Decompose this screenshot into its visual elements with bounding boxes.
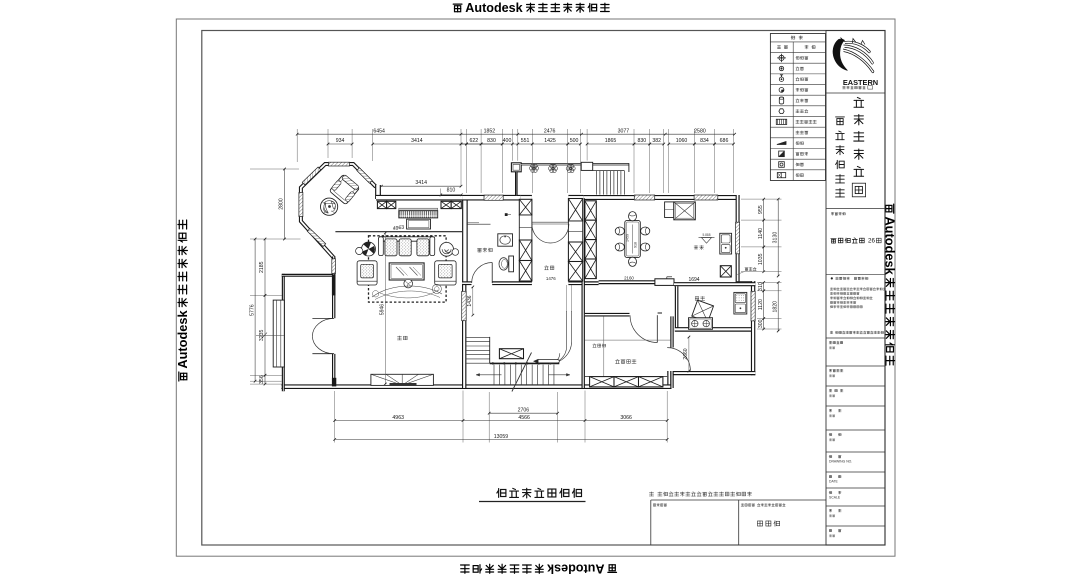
svg-text:SCALE: SCALE (829, 496, 841, 500)
svg-text:310: 310 (758, 282, 764, 291)
svg-text:3414: 3414 (415, 180, 427, 186)
svg-text:3235: 3235 (259, 329, 265, 341)
svg-text:1425: 1425 (544, 138, 556, 144)
svg-text:1852: 1852 (484, 128, 496, 134)
svg-text:1120: 1120 (758, 299, 764, 310)
svg-text:2800: 2800 (279, 198, 285, 210)
svg-text:934: 934 (336, 138, 345, 144)
svg-text:3414: 3414 (411, 138, 423, 144)
svg-text:1694: 1694 (688, 277, 699, 283)
svg-text:1060: 1060 (676, 138, 688, 144)
svg-text:5776: 5776 (249, 304, 255, 316)
svg-text:1820: 1820 (772, 301, 778, 313)
svg-text:DRAWING NO.: DRAWING NO. (829, 460, 852, 464)
svg-text:686: 686 (720, 138, 729, 144)
svg-text:4566: 4566 (518, 415, 530, 421)
svg-text:5.888: 5.888 (703, 233, 711, 237)
svg-text:3066: 3066 (620, 415, 632, 421)
svg-text:1459: 1459 (625, 234, 629, 242)
svg-text:810: 810 (447, 188, 456, 194)
svg-text:5946: 5946 (379, 304, 385, 315)
svg-text:6454: 6454 (373, 128, 385, 134)
svg-text:2580: 2580 (694, 128, 706, 134)
svg-text:EASTERN: EASTERN (843, 78, 878, 87)
svg-text:1476: 1476 (546, 276, 556, 281)
svg-text:3077: 3077 (618, 128, 630, 134)
svg-text:1140: 1140 (758, 228, 764, 239)
svg-text:13059: 13059 (494, 434, 509, 440)
svg-text:1865: 1865 (605, 138, 617, 144)
svg-text:DATE: DATE (829, 480, 839, 484)
svg-text:2706: 2706 (518, 408, 530, 414)
svg-text:Autodesk: Autodesk (465, 1, 523, 15)
svg-text:918: 918 (634, 242, 638, 248)
svg-text:830: 830 (638, 138, 647, 144)
svg-text:300: 300 (758, 319, 764, 328)
svg-text:622: 622 (469, 138, 478, 144)
svg-text:2660: 2660 (683, 348, 689, 359)
svg-text:834: 834 (700, 138, 709, 144)
svg-text:356: 356 (259, 375, 265, 384)
svg-text:Autodesk: Autodesk (175, 309, 190, 368)
svg-text:26: 26 (868, 238, 875, 245)
svg-text:1035: 1035 (758, 253, 764, 265)
svg-text:Autodesk: Autodesk (546, 562, 604, 576)
svg-text:400: 400 (503, 138, 512, 144)
svg-text:830: 830 (487, 138, 496, 144)
svg-text:2476: 2476 (544, 128, 556, 134)
svg-text:2160: 2160 (624, 275, 634, 280)
svg-text:955: 955 (758, 205, 764, 214)
svg-text:2185: 2185 (259, 261, 265, 273)
svg-text:551: 551 (521, 138, 530, 144)
svg-text:4963: 4963 (392, 415, 404, 421)
svg-text:382: 382 (652, 138, 661, 144)
svg-text:1436: 1436 (467, 295, 473, 306)
svg-text:3130: 3130 (772, 232, 778, 244)
svg-text:500: 500 (570, 138, 579, 144)
